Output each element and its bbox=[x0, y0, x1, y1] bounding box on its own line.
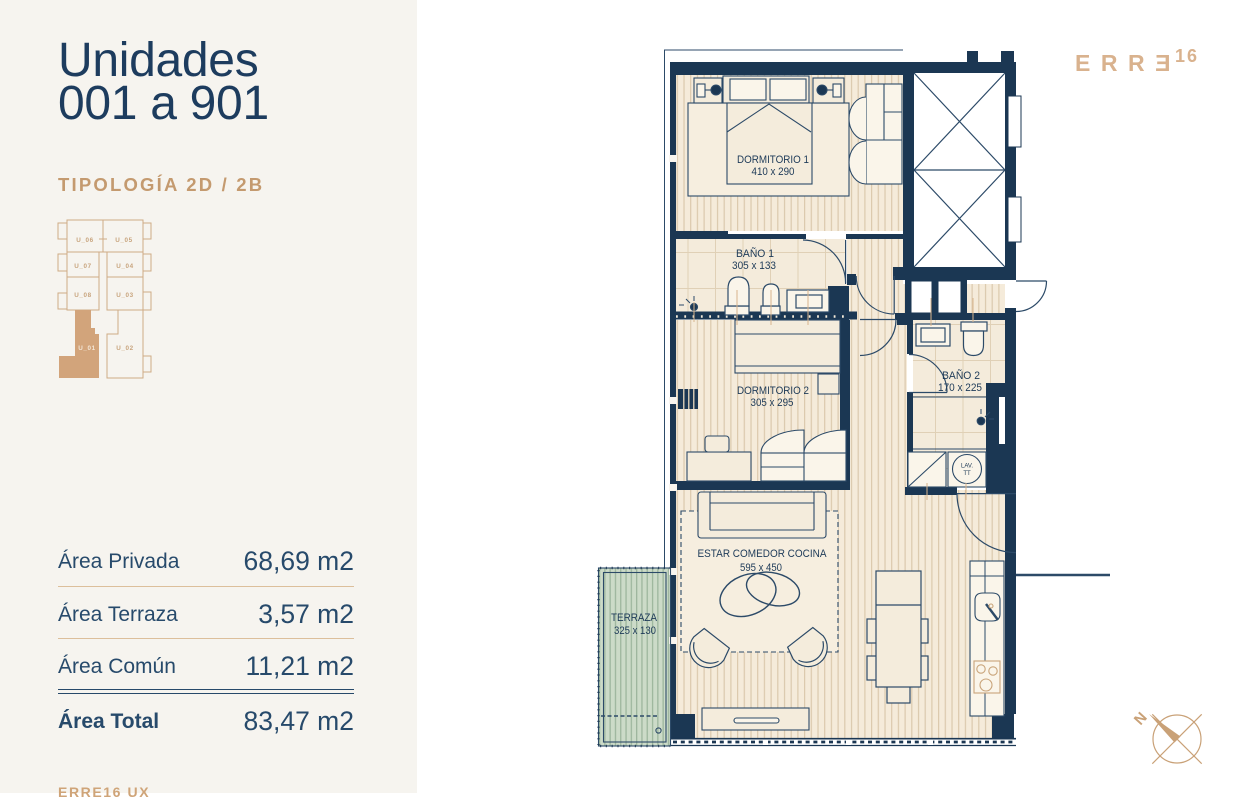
svg-text:U_03: U_03 bbox=[116, 292, 133, 299]
svg-text:U_05: U_05 bbox=[115, 237, 132, 244]
svg-text:16: 16 bbox=[1175, 46, 1199, 66]
svg-text:DORMITORIO 2: DORMITORIO 2 bbox=[737, 385, 809, 397]
svg-text:BAÑO 1: BAÑO 1 bbox=[736, 247, 774, 260]
svg-text:BAÑO 2: BAÑO 2 bbox=[942, 369, 980, 382]
svg-text:E: E bbox=[1155, 50, 1170, 76]
svg-text:410 x 290: 410 x 290 bbox=[752, 166, 795, 178]
svg-text:TERRAZA: TERRAZA bbox=[611, 612, 658, 624]
svg-text:U_07: U_07 bbox=[74, 263, 91, 270]
svg-text:TT: TT bbox=[963, 471, 971, 477]
svg-text:ERR: ERR bbox=[1075, 50, 1155, 76]
svg-text:U_08: U_08 bbox=[74, 292, 91, 299]
svg-text:U_04: U_04 bbox=[116, 263, 133, 270]
svg-text:305 x 133: 305 x 133 bbox=[732, 260, 776, 272]
svg-text:DORMITORIO 1: DORMITORIO 1 bbox=[737, 154, 809, 166]
svg-text:305 x 295: 305 x 295 bbox=[751, 397, 794, 409]
svg-text:U_01: U_01 bbox=[78, 345, 95, 352]
svg-text:N: N bbox=[1131, 709, 1151, 728]
svg-text:325 x 130: 325 x 130 bbox=[614, 625, 656, 637]
svg-text:U_02: U_02 bbox=[116, 345, 133, 352]
svg-text:LAV.: LAV. bbox=[961, 464, 973, 470]
svg-text:595 x 450: 595 x 450 bbox=[740, 562, 782, 574]
svg-text:170 x 225: 170 x 225 bbox=[938, 382, 982, 394]
svg-text:U_06: U_06 bbox=[76, 237, 93, 244]
svg-text:ESTAR COMEDOR COCINA: ESTAR COMEDOR COCINA bbox=[698, 548, 828, 560]
